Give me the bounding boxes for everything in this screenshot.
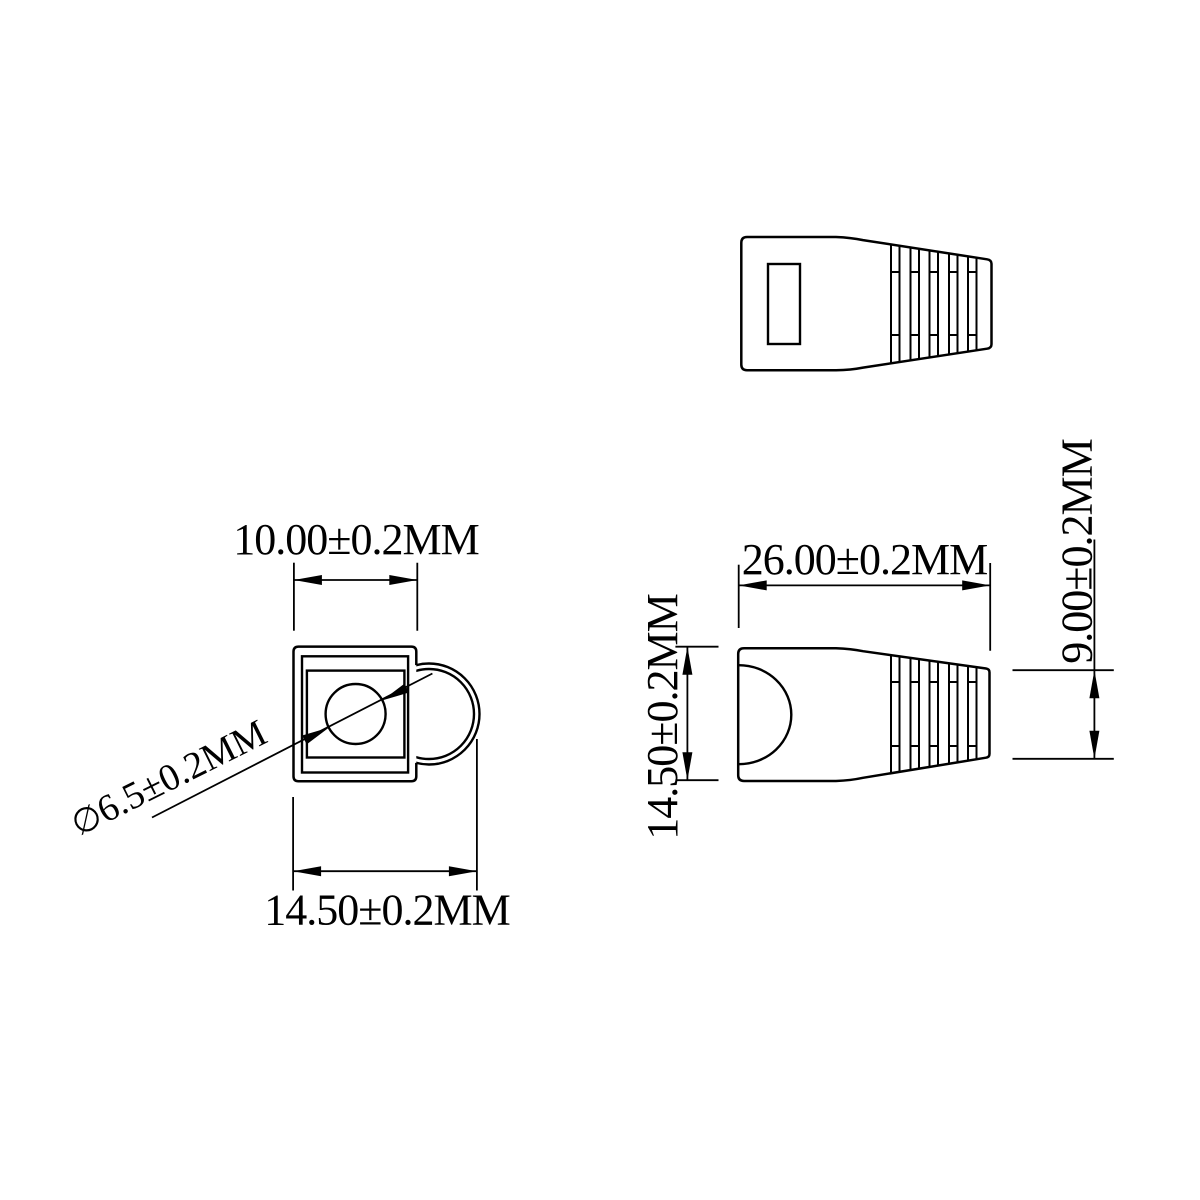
svg-text:10.00±0.2MM: 10.00±0.2MM [233,515,478,564]
svg-text:14.50±0.2MM: 14.50±0.2MM [264,885,509,934]
svg-text:14.50±0.2MM: 14.50±0.2MM [638,594,687,839]
svg-text:∅6.5±0.2MM: ∅6.5±0.2MM [64,712,273,845]
svg-text:26.00±0.2MM: 26.00±0.2MM [742,535,987,584]
svg-text:9.00±0.2MM: 9.00±0.2MM [1053,439,1102,663]
